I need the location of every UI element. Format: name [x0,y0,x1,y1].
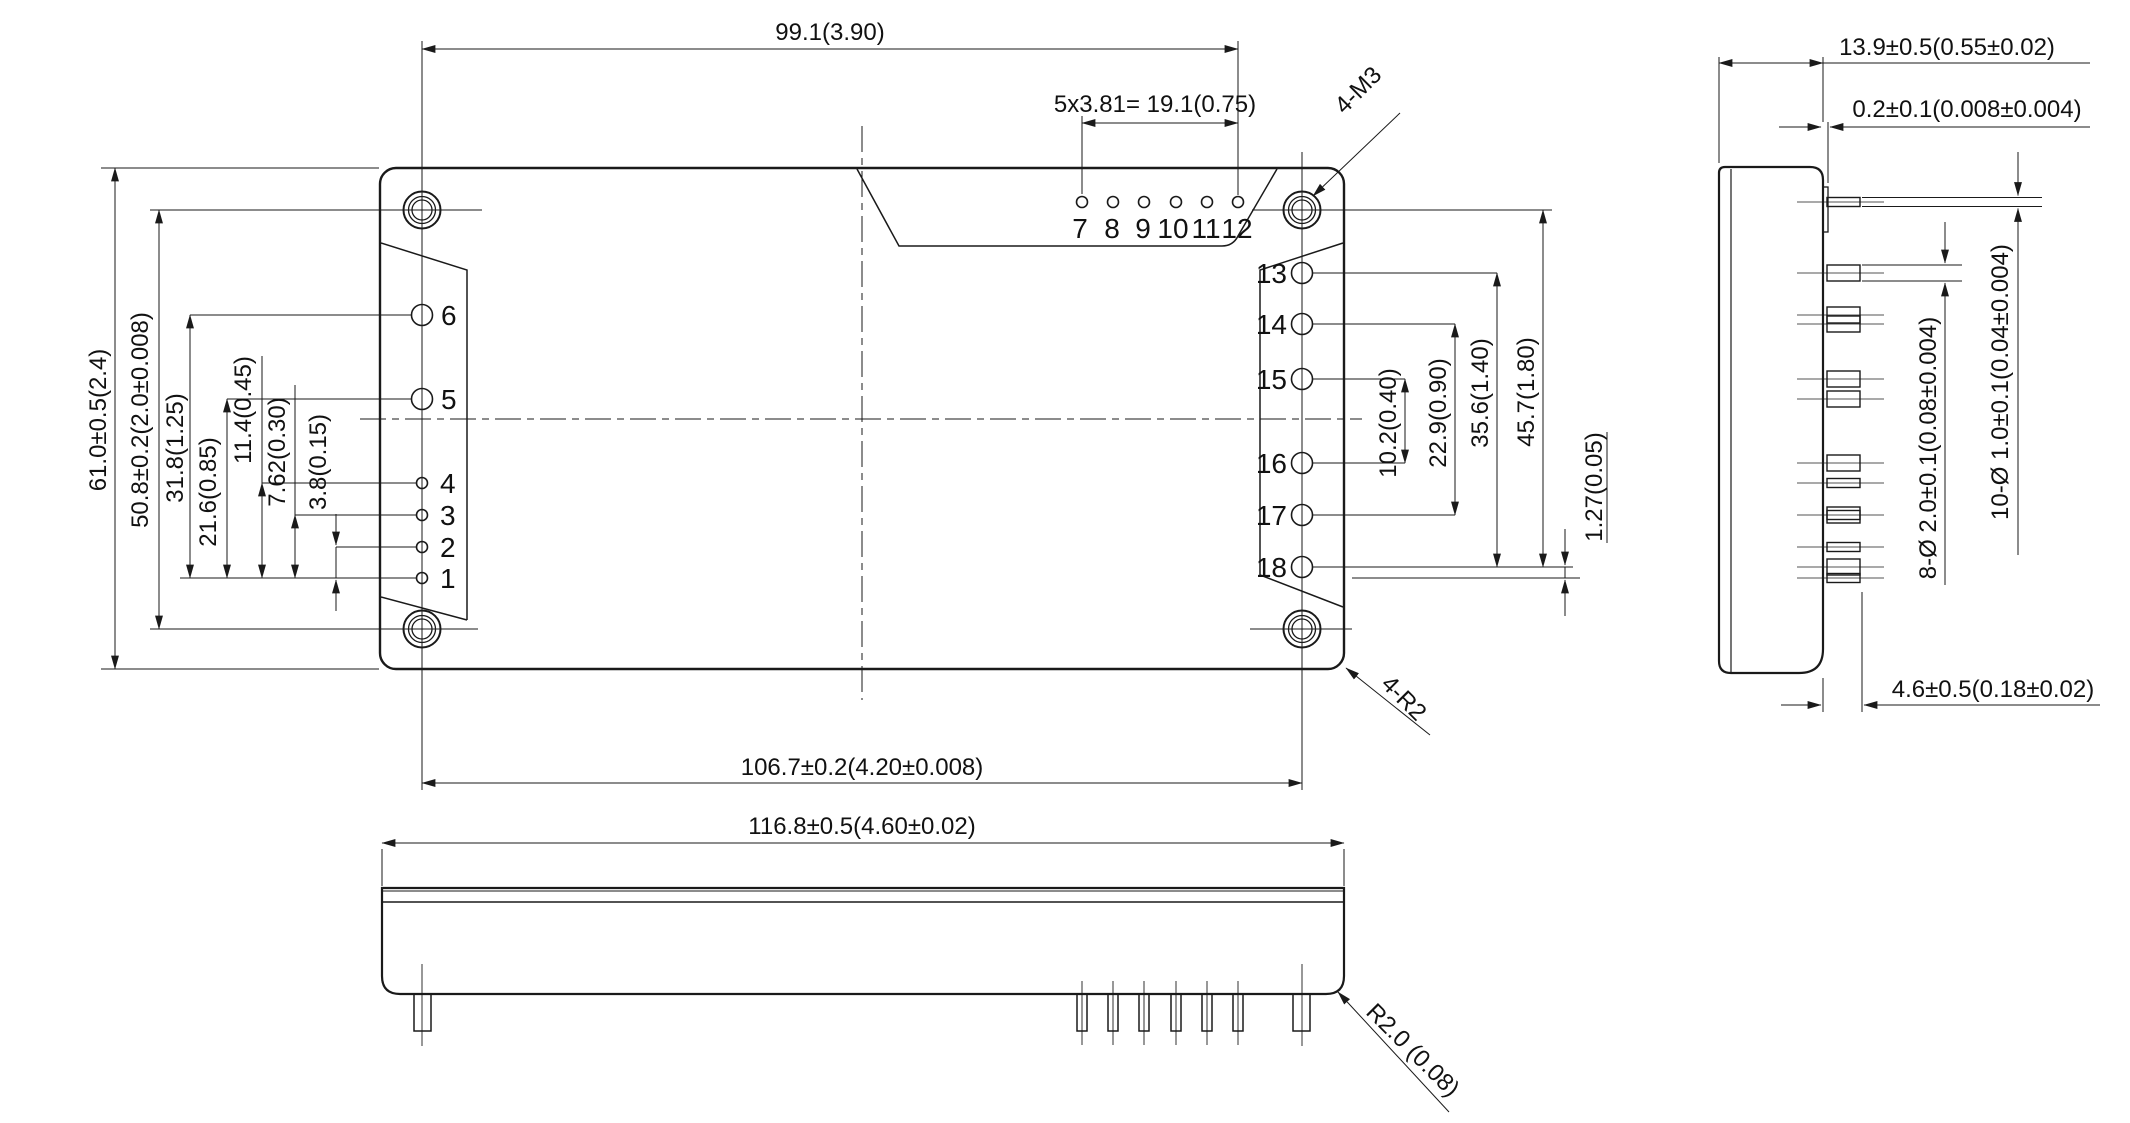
mechanical-outline-drawing: 99.1(3.90) 5x3.81= 19.1(0.75) 4-M3 4-R2 … [0,0,2130,1123]
top-view-labels: 99.1(3.90) 5x3.81= 19.1(0.75) 4-M3 4-R2 … [85,19,1608,781]
dim-pin6-offset: 31.8(1.25) [162,393,189,502]
side-view [1719,57,2100,712]
front-view-labels: 116.8±0.5(4.60±0.02) R2.0 (0.08) [748,813,1464,1102]
dim-pin5-offset: 21.6(0.85) [195,437,222,546]
pin-label-8: 8 [1104,213,1120,244]
dim-pin-length: 4.6±0.5(0.18±0.02) [1892,676,2094,703]
dim-lines-side [1719,57,2100,712]
pin-label-16: 16 [1256,448,1287,479]
pin-10 [1171,197,1182,208]
dim-body-height: 61.0±0.5(2.4) [85,349,112,492]
dim-pin2-offset: 3.8(0.15) [305,414,332,510]
pin-label-9: 9 [1135,213,1151,244]
pin-label-2: 2 [440,532,456,563]
side-view-large-pins [1827,265,1860,575]
pin-label-17: 17 [1256,500,1287,531]
side-view-pin-centerlines [1797,202,1884,578]
pin-label-4: 4 [440,468,456,499]
hole-axis-lines [362,41,1552,790]
dim-pin3-offset: 7.62(0.30) [264,397,291,506]
dim-hole-span-v: 50.8±0.2(2.0±0.008) [127,312,154,528]
dim-pin18-edge-gap: 1.27(0.05) [1581,432,1608,541]
side-view-small-pins [1827,198,1860,583]
dim-pin13-18-span: 35.6(1.40) [1467,338,1494,447]
engineering-drawing-sheet: 99.1(3.90) 5x3.81= 19.1(0.75) 4-M3 4-R2 … [0,0,2130,1123]
front-view-pin-centerlines [422,964,1302,1046]
pin-label-10: 10 [1157,213,1188,244]
pin-label-15: 15 [1256,364,1287,395]
side-view-body-outline [1719,167,1823,673]
dim-pin15-16-span: 10.2(0.40) [1375,368,1402,477]
leader-4-m3 [1313,113,1400,196]
pin-label-13: 13 [1256,258,1287,289]
pin-label-3: 3 [440,500,456,531]
pin-9 [1139,197,1150,208]
dim-hole-pin18-span: 45.7(1.80) [1513,337,1540,446]
pin-12 [1233,197,1244,208]
dim-pin14-17-span: 22.9(0.90) [1425,358,1452,467]
dim-hole-span-h: 99.1(3.90) [775,19,884,46]
front-view-body-outline [382,888,1344,994]
pins-top-row [1077,197,1244,208]
dim-pin-pitch: 5x3.81= 19.1(0.75) [1054,91,1256,118]
label-mounting-holes: 4-M3 [1329,61,1387,119]
dim-front-corner-radius: R2.0 (0.08) [1361,998,1465,1102]
pin-label-12: 12 [1221,213,1252,244]
pin-label-6: 6 [441,300,457,331]
dim-large-pin-dia: 8-Ø 2.0±0.1(0.08±0.004) [1915,317,1942,580]
dim-lines-front [382,843,1344,886]
pin-11 [1202,197,1213,208]
pin-label-1: 1 [440,563,456,594]
pin-8 [1108,197,1119,208]
pin-label-11: 11 [1191,213,1220,244]
dim-small-pin-dia: 10-Ø 1.0±0.1(0.04±0.004) [1987,244,2014,520]
dim-body-width: 116.8±0.5(4.60±0.02) [748,813,975,840]
pin-numbers-top: 7 8 9 10 11 12 [1072,213,1252,244]
pin-label-7: 7 [1072,213,1088,244]
dim-pin4-offset: 11.4(0.45) [230,356,257,464]
pin-label-18: 18 [1256,552,1287,583]
dim-standoff: 0.2±0.1(0.008±0.004) [1852,96,2081,123]
front-pin-left-column [414,994,431,1031]
pin-label-14: 14 [1256,309,1287,340]
dim-body-depth: 13.9±0.5(0.55±0.02) [1839,34,2055,61]
side-view-labels: 13.9±0.5(0.55±0.02) 0.2±0.1(0.008±0.004)… [1839,34,2094,703]
pin-7 [1077,197,1088,208]
dim-hole-span-bottom: 106.7±0.2(4.20±0.008) [741,754,984,781]
front-pin-right-column [1293,994,1310,1031]
pin-label-5: 5 [441,384,457,415]
front-view [382,843,1449,1112]
pin-numbers-left: 1 2 3 4 5 6 [440,300,457,594]
